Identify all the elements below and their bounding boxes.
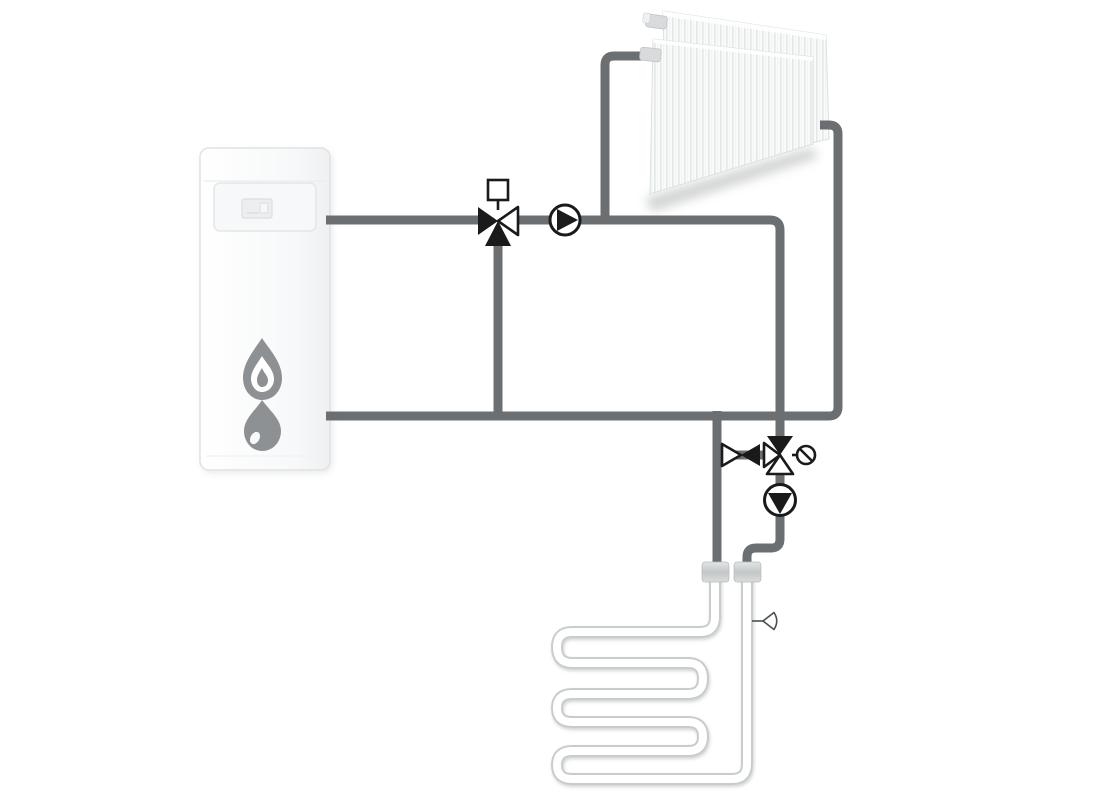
pipe-couplings xyxy=(702,562,761,582)
panel-radiator xyxy=(645,11,829,212)
radiator-supply-pipe xyxy=(605,56,648,222)
sensor-icon xyxy=(763,613,777,630)
pipe-coupling-left xyxy=(702,562,729,582)
floor-circuit-supply-pipe xyxy=(578,220,780,438)
shutoff-left-triangle xyxy=(722,444,741,466)
heating-schematic-canvas xyxy=(0,0,1100,795)
three-way-mixing-valve-bottom xyxy=(764,436,815,474)
three-way-mixing-valve-top xyxy=(478,180,518,246)
temperature-sensor xyxy=(752,613,777,630)
radiator-front-panel xyxy=(650,39,813,194)
heating-schematic xyxy=(0,0,1100,795)
radiator-front-fitting xyxy=(639,47,661,62)
pipe-coupling-right xyxy=(734,562,761,582)
square-actuator-icon xyxy=(488,180,508,200)
underfloor-heating-coil xyxy=(557,563,747,779)
shutoff-valve-bottom xyxy=(722,444,760,466)
shutoff-right-triangle xyxy=(741,444,760,466)
circulation-pump-floor xyxy=(765,485,796,516)
gas-boiler xyxy=(200,148,330,470)
radiator-back-fitting-cap xyxy=(642,13,650,24)
circulation-pump-radiator xyxy=(550,205,580,235)
display-icon xyxy=(242,199,272,218)
pump-outlet-s-bend-pipe xyxy=(747,513,780,564)
